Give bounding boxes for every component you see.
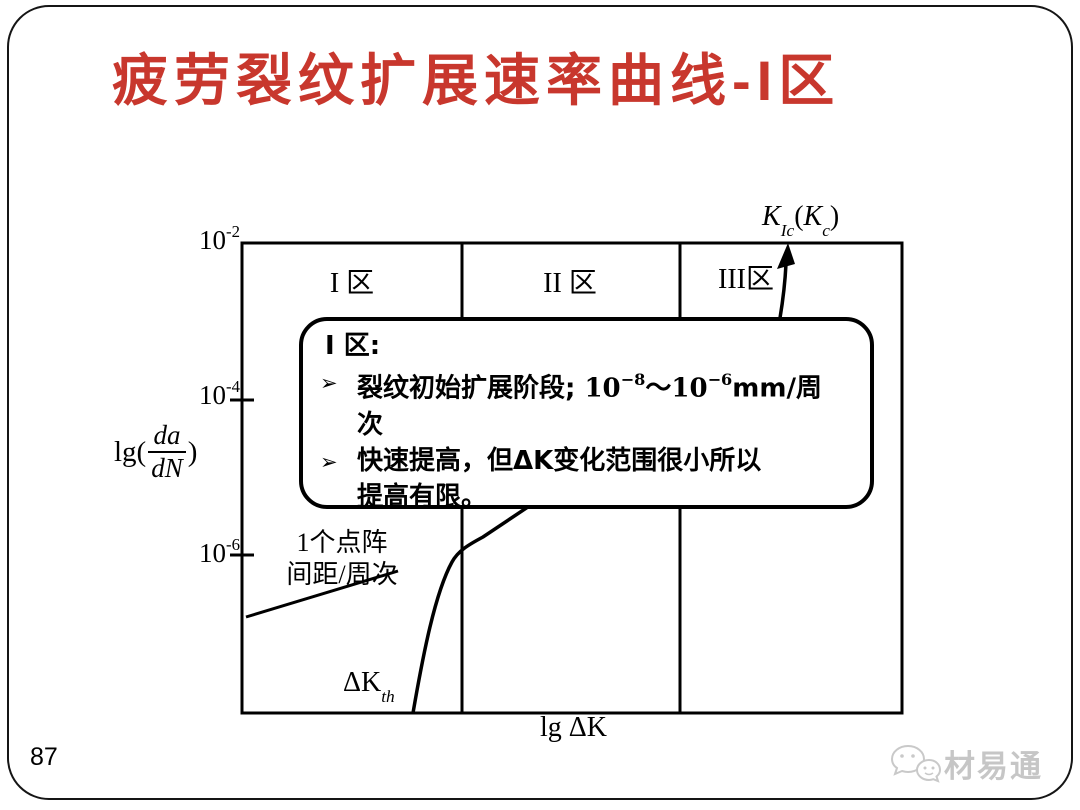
watermark: 材易通 [888, 740, 1043, 786]
region-label-1: I 区 [302, 261, 402, 301]
callout-bullet-2-line-1: 快速提高，但ΔK变化范围很小所以 [357, 443, 858, 479]
callout-bullet-1-line-1: 裂纹初始扩展阶段; 10−8～10−6mm/周 [357, 364, 858, 407]
kic-label: KIc(Kc) [762, 201, 839, 237]
lattice-note: 1个点阵 间距/周次 [272, 527, 412, 591]
ytick-label-1e-2: 10-2 [156, 224, 240, 256]
slide-title: 疲劳裂纹扩展速率曲线-I区 [112, 36, 840, 117]
watermark-label: 材易通 [944, 741, 1043, 786]
x-axis-label: lg ΔK [540, 712, 607, 744]
callout-bullet-2-line-2: 提高有限。 [357, 479, 858, 515]
slide: 疲劳裂纹扩展速率曲线-I区 10-2 10-4 10-6 lg(dadN) I … [0, 0, 1080, 810]
callout-box: I 区: ➢ 裂纹初始扩展阶段; 10−8～10−6mm/周 次 ➢ 快速提高，… [299, 317, 874, 509]
callout-bullet-2: ➢ 快速提高，但ΔK变化范围很小所以 提高有限。 [320, 443, 858, 515]
page-number: 87 [30, 743, 58, 772]
region-label-3: III区 [701, 257, 791, 297]
bullet-arrow-icon: ➢ [320, 364, 357, 443]
callout-bullet-1: ➢ 裂纹初始扩展阶段; 10−8～10−6mm/周 次 [320, 364, 858, 443]
bullet-arrow-icon: ➢ [320, 443, 357, 515]
ytick-label-1e-6: 10-6 [156, 537, 240, 569]
callout-title: I 区: [325, 328, 858, 364]
ytick-label-1e-4: 10-4 [156, 379, 240, 411]
delta-k-th-label: ΔKth [343, 667, 395, 703]
region-label-2: II 区 [520, 261, 620, 301]
chat-bubbles-icon [888, 740, 944, 786]
y-axis-label: lg(dadN) [114, 420, 197, 484]
callout-bullet-1-line-2: 次 [357, 407, 858, 443]
